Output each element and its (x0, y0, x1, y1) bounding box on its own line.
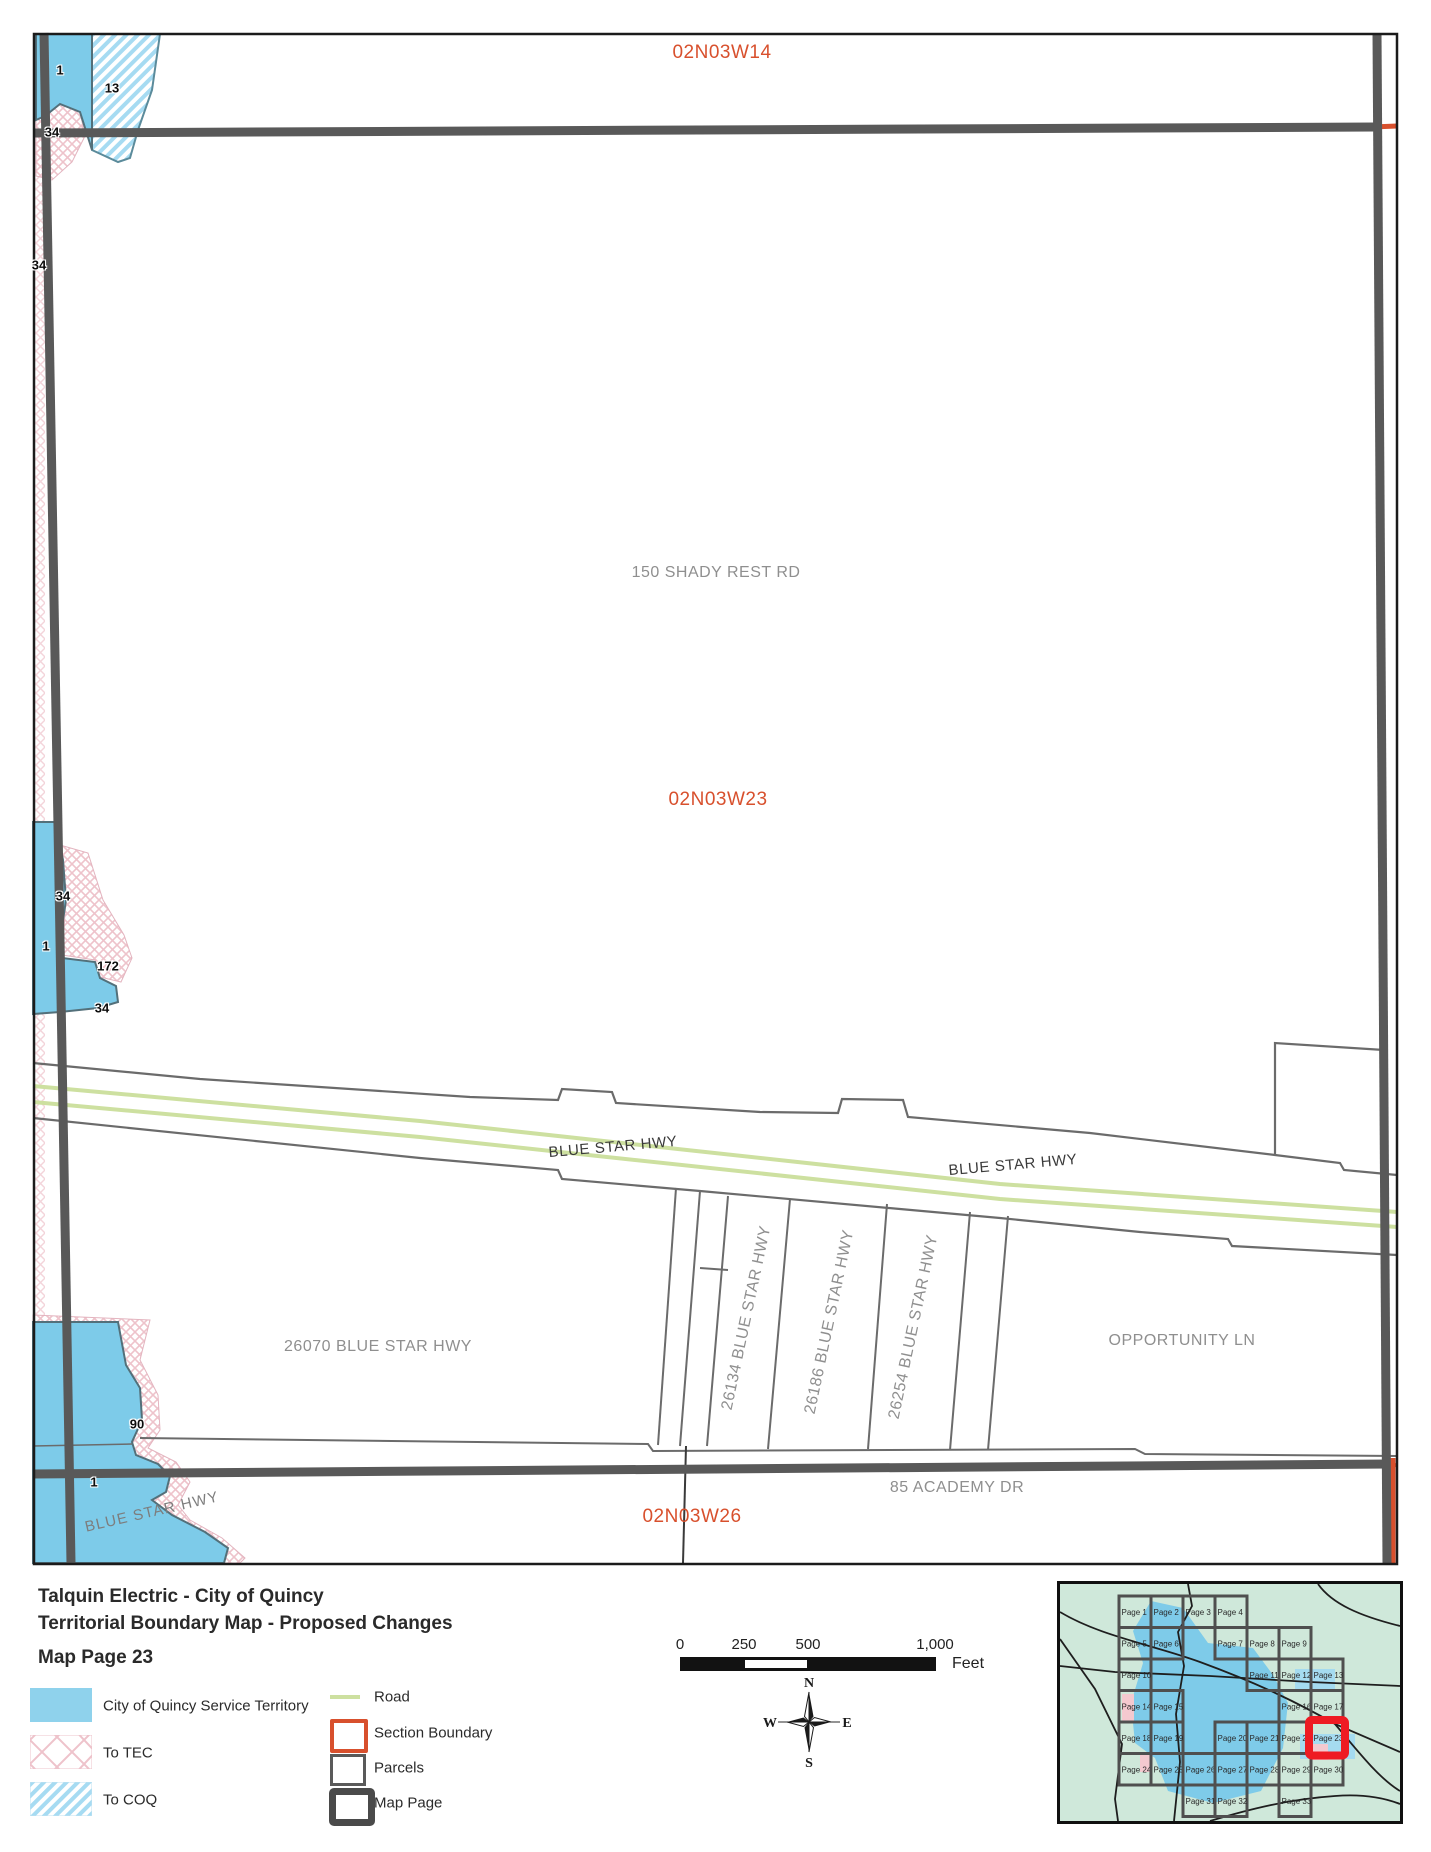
title-line-1: Talquin Electric - City of Quincy (38, 1583, 453, 1610)
scale-tick-label: 500 (795, 1636, 820, 1653)
inset-page-label: Page 13 (1314, 1671, 1344, 1680)
service-territory-swatch (30, 1688, 92, 1722)
to-coq-area (92, 34, 160, 162)
map-page-boundary-top (33, 127, 1376, 133)
scale-bar-segment (745, 1660, 807, 1668)
road-centerline (33, 1102, 1397, 1227)
inset-page-label: Page 24 (1122, 1765, 1152, 1774)
parcel-line (680, 1191, 700, 1446)
inset-page-label: Page 11 (1250, 1671, 1280, 1680)
inset-page-label: Page 21 (1250, 1734, 1280, 1743)
inset-page-label: Page 26 (1186, 1765, 1216, 1774)
legend-label: Map Page (374, 1795, 442, 1812)
to-tec-swatch (30, 1735, 92, 1769)
title-line-2: Territorial Boundary Map - Proposed Chan… (38, 1610, 453, 1637)
section-boundary-swatch (330, 1719, 368, 1753)
legend-label: City of Quincy Service Territory (103, 1698, 309, 1715)
compass-south-label: S (805, 1756, 813, 1771)
inset-page-label: Page 31 (1186, 1797, 1216, 1806)
compass-east-label: E (842, 1716, 851, 1731)
inset-page-label: Page 3 (1186, 1608, 1212, 1617)
inset-page-label: Page 33 (1282, 1797, 1312, 1806)
scale-tick-label: 0 (676, 1636, 684, 1653)
compass-west-label: W (763, 1716, 777, 1731)
parcel-line (700, 1268, 728, 1270)
inset-page-label: Page 23 (1314, 1734, 1344, 1743)
inset-page-label: Page 18 (1122, 1734, 1152, 1743)
parcels-south-of-highway (140, 1188, 1397, 1456)
legend-label: Road (374, 1689, 410, 1706)
inset-page-label: Page 5 (1122, 1639, 1148, 1648)
inset-page-label: Page 27 (1218, 1765, 1248, 1774)
parcel-line (768, 1199, 790, 1449)
legend-label: To TEC (103, 1745, 153, 1762)
parcel-line (868, 1204, 887, 1449)
inset-locator-map: Page 1Page 2Page 3Page 4Page 5Page 6Page… (1057, 1581, 1403, 1824)
inset-page-label: Page 28 (1250, 1765, 1280, 1774)
inset-page-label: Page 6 (1154, 1639, 1180, 1648)
scale-tick-label: 250 (731, 1636, 756, 1653)
legend-label: Section Boundary (374, 1725, 492, 1742)
title-line-3: Map Page 23 (38, 1644, 453, 1671)
parcel-line (658, 1188, 676, 1445)
mid-left-territory-shapes (33, 822, 132, 1014)
map-title-block: Talquin Electric - City of Quincy Territ… (38, 1583, 453, 1671)
road-swatch (330, 1695, 360, 1699)
inset-page-label: Page 17 (1314, 1702, 1344, 1711)
inset-page-label: Page 14 (1122, 1702, 1152, 1711)
inset-road (1318, 1584, 1400, 1626)
inset-page-label: Page 20 (1218, 1734, 1248, 1743)
compass-rose-icon: N S E W (759, 1672, 859, 1772)
parcel-line (950, 1212, 970, 1450)
parcel-line (988, 1216, 1008, 1450)
inset-page-label: Page 30 (1314, 1765, 1344, 1774)
inset-page-label: Page 29 (1282, 1765, 1312, 1774)
inset-map-canvas: Page 1Page 2Page 3Page 4Page 5Page 6Page… (1060, 1584, 1400, 1821)
inset-page-label: Page 32 (1218, 1797, 1248, 1806)
inset-page-label: Page 16 (1282, 1702, 1312, 1711)
territory-map-canvas (0, 0, 1431, 1575)
parcel-line (1275, 1043, 1384, 1155)
legend-label: Parcels (374, 1760, 424, 1777)
inset-page-label: Page 19 (1154, 1734, 1184, 1743)
map-page-boundary (33, 33, 1390, 1563)
parcels-swatch (330, 1754, 366, 1786)
to-coq-swatch (30, 1782, 92, 1816)
scale-bar (680, 1657, 936, 1671)
scale-tick-label: 1,000 (916, 1636, 954, 1653)
parcel-line (707, 1196, 728, 1446)
map-page-boundary-bottom (33, 1464, 1390, 1474)
map-page-boundary-right (1377, 33, 1387, 1563)
inset-page-label: Page 2 (1154, 1608, 1180, 1617)
scale-unit-label: Feet (952, 1655, 984, 1673)
inset-page-label: Page 4 (1218, 1608, 1244, 1617)
inset-page-label: Page 1 (1122, 1608, 1148, 1617)
inset-page-label: Page 9 (1282, 1639, 1308, 1648)
compass-north-label: N (804, 1676, 814, 1691)
legend-label: To COQ (103, 1792, 157, 1809)
inset-page-label: Page 8 (1250, 1639, 1276, 1648)
inset-page-label: Page 25 (1154, 1765, 1184, 1774)
inset-page-label: Page 12 (1282, 1671, 1312, 1680)
map-document-page: 02N03W1402N03W2302N03W26150 SHADY REST R… (0, 0, 1431, 1852)
section-line (683, 1446, 686, 1563)
blue-star-hwy-corridor (33, 1043, 1397, 1255)
inset-page-label: Page 10 (1122, 1671, 1152, 1680)
parcel-line (33, 1118, 1397, 1255)
top-left-territory-shapes (36, 34, 160, 180)
inset-page-label: Page 15 (1154, 1702, 1184, 1711)
map-page-swatch (329, 1788, 375, 1826)
inset-page-label: Page 7 (1218, 1639, 1244, 1648)
